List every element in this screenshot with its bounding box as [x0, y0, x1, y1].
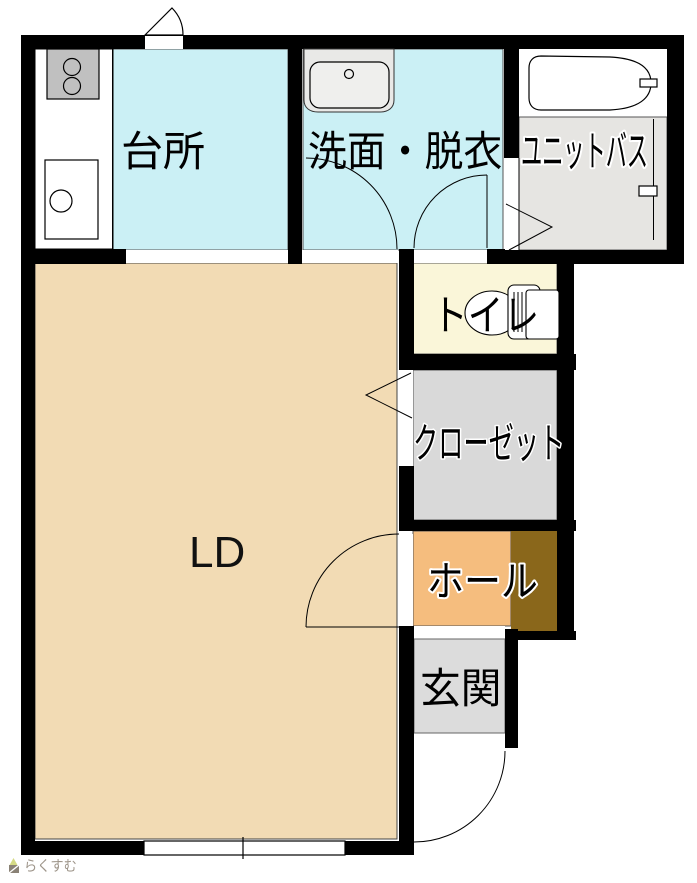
svg-text:LD: LD [189, 528, 245, 577]
